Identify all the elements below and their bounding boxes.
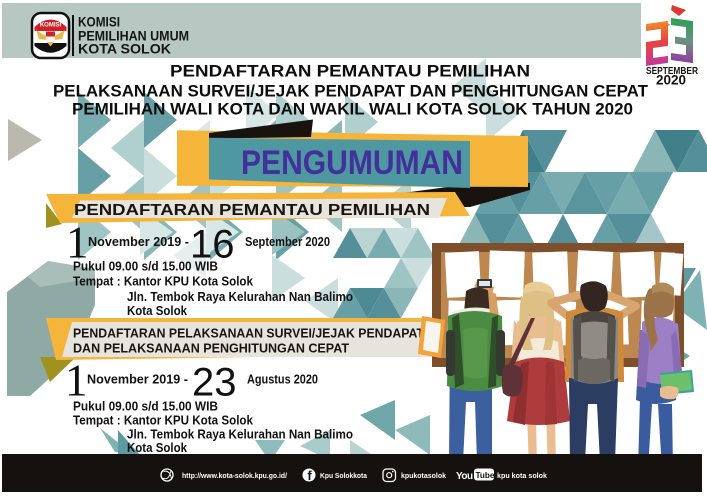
svg-text:Tube: Tube [476, 471, 495, 480]
svg-text:Pukul 09.00 s/d 15.00 WIB: Pukul 09.00 s/d 15.00 WIB [73, 400, 218, 414]
svg-text:PEMILIHAN WALI KOTA DAN WAKIL: PEMILIHAN WALI KOTA DAN WAKIL WALI KOTA … [72, 101, 633, 119]
svg-text:You: You [456, 471, 473, 482]
svg-text:DAN PELAKSANAAN PENGHITUNGAN C: DAN PELAKSANAAN PENGHITUNGAN CEPAT [73, 340, 349, 355]
svg-text:f: f [307, 468, 312, 483]
svg-text:PENDAFTARAN PEMANTAU PEMILIHAN: PENDAFTARAN PEMANTAU PEMILIHAN [74, 202, 430, 219]
svg-text:Tempat : Kantor KPU Kota Solok: Tempat : Kantor KPU Kota Solok [73, 275, 253, 289]
svg-text:2020: 2020 [656, 73, 686, 88]
svg-text:November 2019 -: November 2019 - [87, 373, 188, 387]
svg-text:Kpu Solokkota: Kpu Solokkota [320, 471, 368, 480]
svg-text:kpukotasolok: kpukotasolok [401, 471, 447, 480]
svg-text:PENGUMUMAN: PENGUMUMAN [241, 144, 463, 182]
svg-text:http://www.kota-solok.kpu.go.i: http://www.kota-solok.kpu.go.id/ [182, 471, 288, 480]
svg-text:November 2019 -: November 2019 - [88, 235, 189, 249]
svg-text:kpu kota solok: kpu kota solok [497, 471, 548, 480]
svg-text:23: 23 [192, 361, 237, 405]
svg-text:PENDAFTARAN PEMANTAU PEMILIHAN: PENDAFTARAN PEMANTAU PEMILIHAN [170, 62, 530, 80]
svg-text:1: 1 [65, 356, 88, 406]
svg-text:Kota Solok: Kota Solok [127, 441, 187, 455]
svg-text:KOMISI: KOMISI [40, 23, 62, 29]
svg-text:Pukul 09.00 s/d 15.00 WIB: Pukul 09.00 s/d 15.00 WIB [73, 260, 218, 274]
svg-text:PENDAFTARAN PELAKSANAAN SURVEI: PENDAFTARAN PELAKSANAAN SURVEI/JEJAK PEN… [73, 325, 424, 340]
svg-text:Tempat : Kantor KPU Kota Solok: Tempat : Kantor KPU Kota Solok [73, 414, 253, 428]
svg-text:Kota Solok: Kota Solok [127, 304, 187, 318]
svg-text:Jln. Tembok Raya Kelurahan Nan: Jln. Tembok Raya Kelurahan Nan Balimo [127, 428, 353, 442]
svg-text:KOTA SOLOK: KOTA SOLOK [78, 42, 171, 57]
svg-text:PELAKSANAAN SURVEI/JEJAK PENDA: PELAKSANAAN SURVEI/JEJAK PENDAPAT DAN PE… [53, 82, 648, 100]
svg-text:Agustus 2020: Agustus 2020 [247, 373, 318, 387]
svg-text:Jln. Tembok Raya Kelurahan Nan: Jln. Tembok Raya Kelurahan Nan Balimo [127, 290, 353, 304]
svg-text:September 2020: September 2020 [245, 235, 330, 249]
